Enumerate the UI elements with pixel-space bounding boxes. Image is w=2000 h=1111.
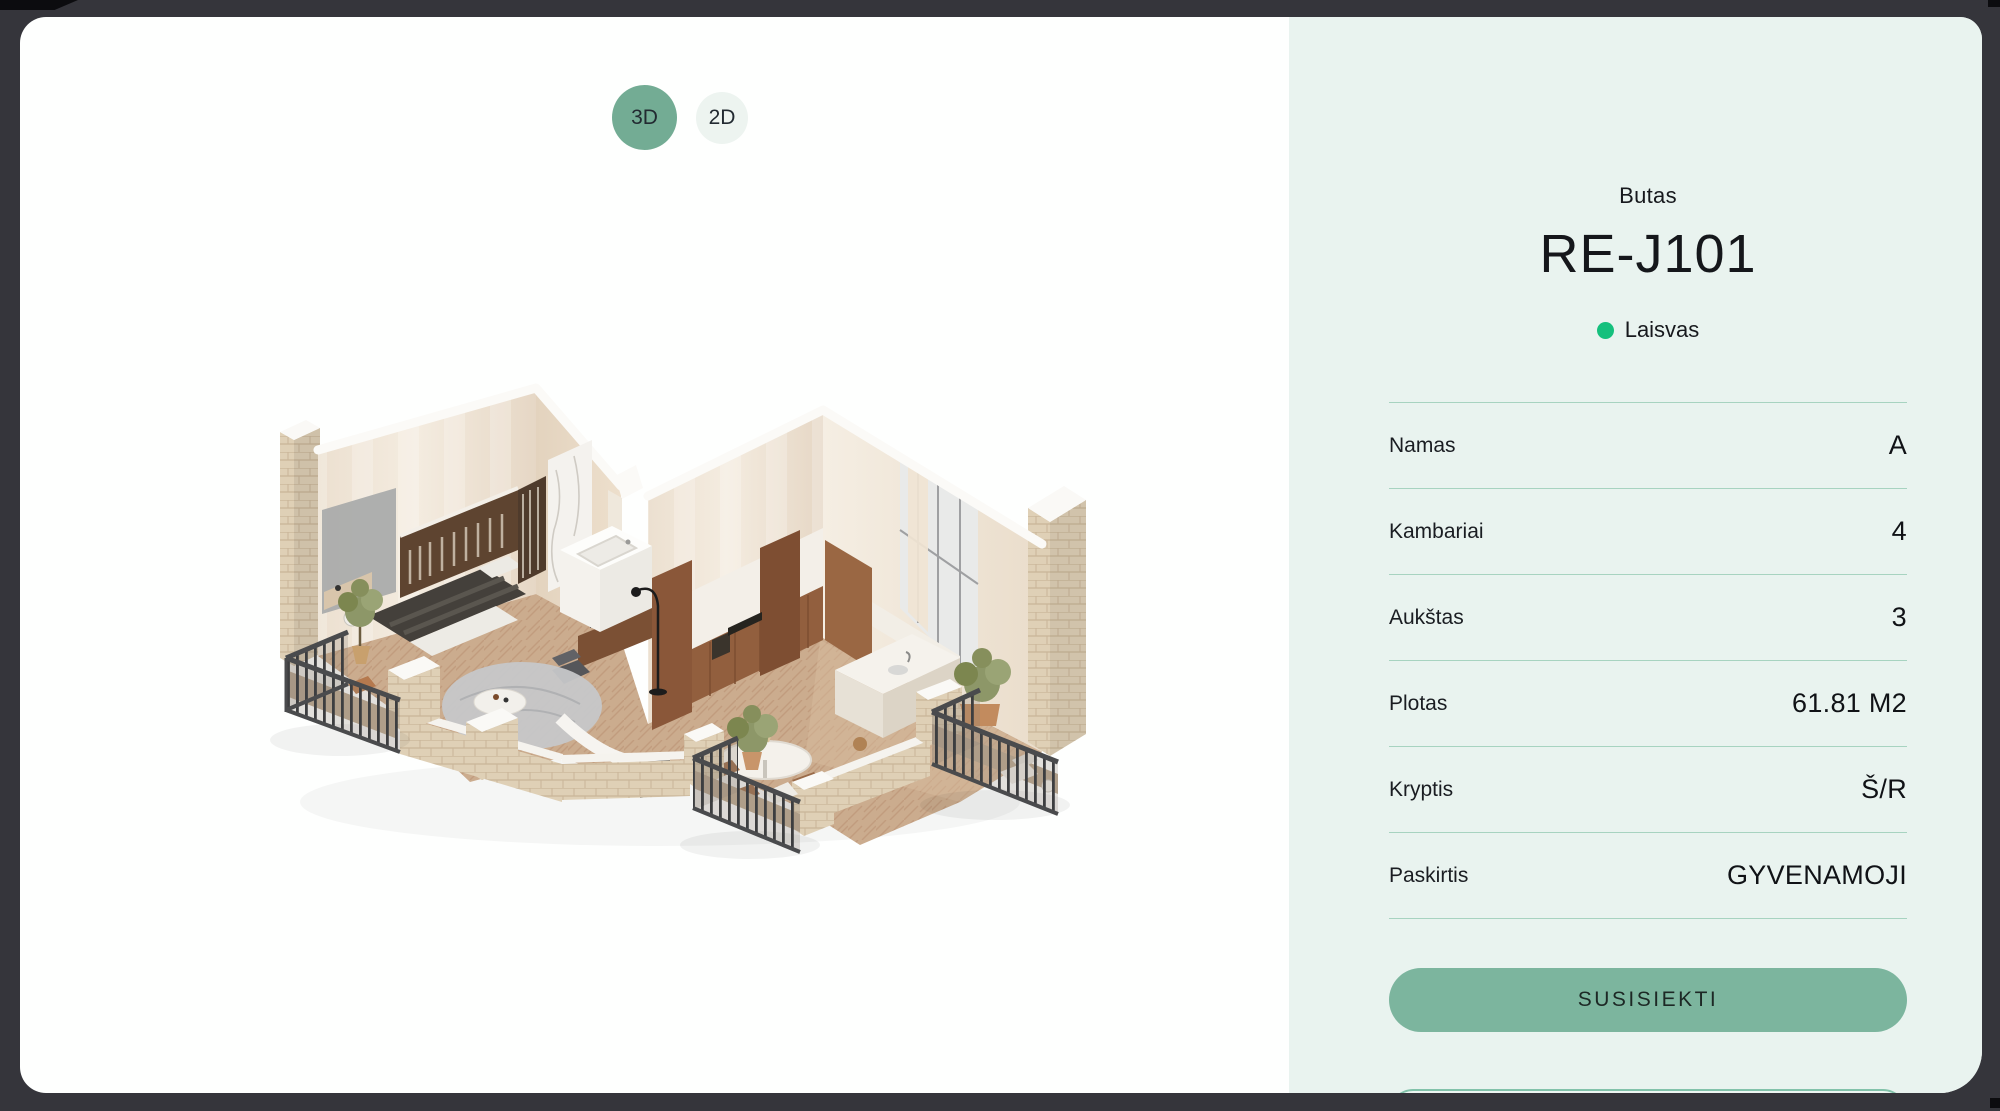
screen-artifact-top-right: [1988, 0, 2000, 7]
spec-value: A: [1889, 430, 1907, 461]
secondary-button-clipped[interactable]: [1389, 1089, 1907, 1093]
floorplan-3d-render[interactable]: [260, 340, 1100, 860]
apartment-viewer-page: { "frame": { "background": "#35353B" }, …: [0, 0, 2000, 1111]
apartment-id-title: RE-J101: [1389, 223, 1907, 285]
spec-row-aukstas: Aukštas 3: [1389, 575, 1907, 661]
spec-table: Namas A Kambariai 4 Aukštas 3 Plotas 61.…: [1389, 402, 1907, 919]
screen-artifact-top-left: [0, 0, 78, 10]
spec-value: Š/R: [1861, 774, 1907, 805]
availability-status: Laisvas: [1389, 317, 1907, 343]
floorplan-viewer: 3D 2D: [20, 17, 1289, 1093]
spec-row-paskirtis: Paskirtis GYVENAMOJI: [1389, 833, 1907, 919]
spec-value: 4: [1892, 516, 1907, 547]
spec-row-namas: Namas A: [1389, 402, 1907, 489]
app-window: 3D 2D: [20, 17, 1982, 1093]
spec-label: Namas: [1389, 434, 1456, 458]
screen-artifact-bottom-right: [1990, 1098, 2000, 1108]
spec-label: Kambariai: [1389, 520, 1484, 544]
spec-label: Plotas: [1389, 692, 1447, 716]
spec-value: 61.81 M2: [1792, 688, 1907, 719]
apartment-details-panel: Butas RE-J101 Laisvas Namas A Kambariai …: [1289, 17, 1982, 1093]
contact-button[interactable]: SUSISIEKTI: [1389, 968, 1907, 1032]
spec-label: Kryptis: [1389, 778, 1453, 802]
view-toggle-2d[interactable]: 2D: [696, 92, 748, 144]
spec-row-kambariai: Kambariai 4: [1389, 489, 1907, 575]
view-toggle-3d[interactable]: 3D: [612, 85, 677, 150]
status-dot-icon: [1597, 322, 1614, 339]
spec-row-plotas: Plotas 61.81 M2: [1389, 661, 1907, 747]
status-label: Laisvas: [1625, 317, 1700, 343]
spec-label: Aukštas: [1389, 606, 1464, 630]
apartment-type-label: Butas: [1389, 183, 1907, 209]
spec-value: GYVENAMOJI: [1727, 860, 1907, 891]
spec-value: 3: [1892, 602, 1907, 633]
spec-row-kryptis: Kryptis Š/R: [1389, 747, 1907, 833]
spec-label: Paskirtis: [1389, 864, 1468, 888]
